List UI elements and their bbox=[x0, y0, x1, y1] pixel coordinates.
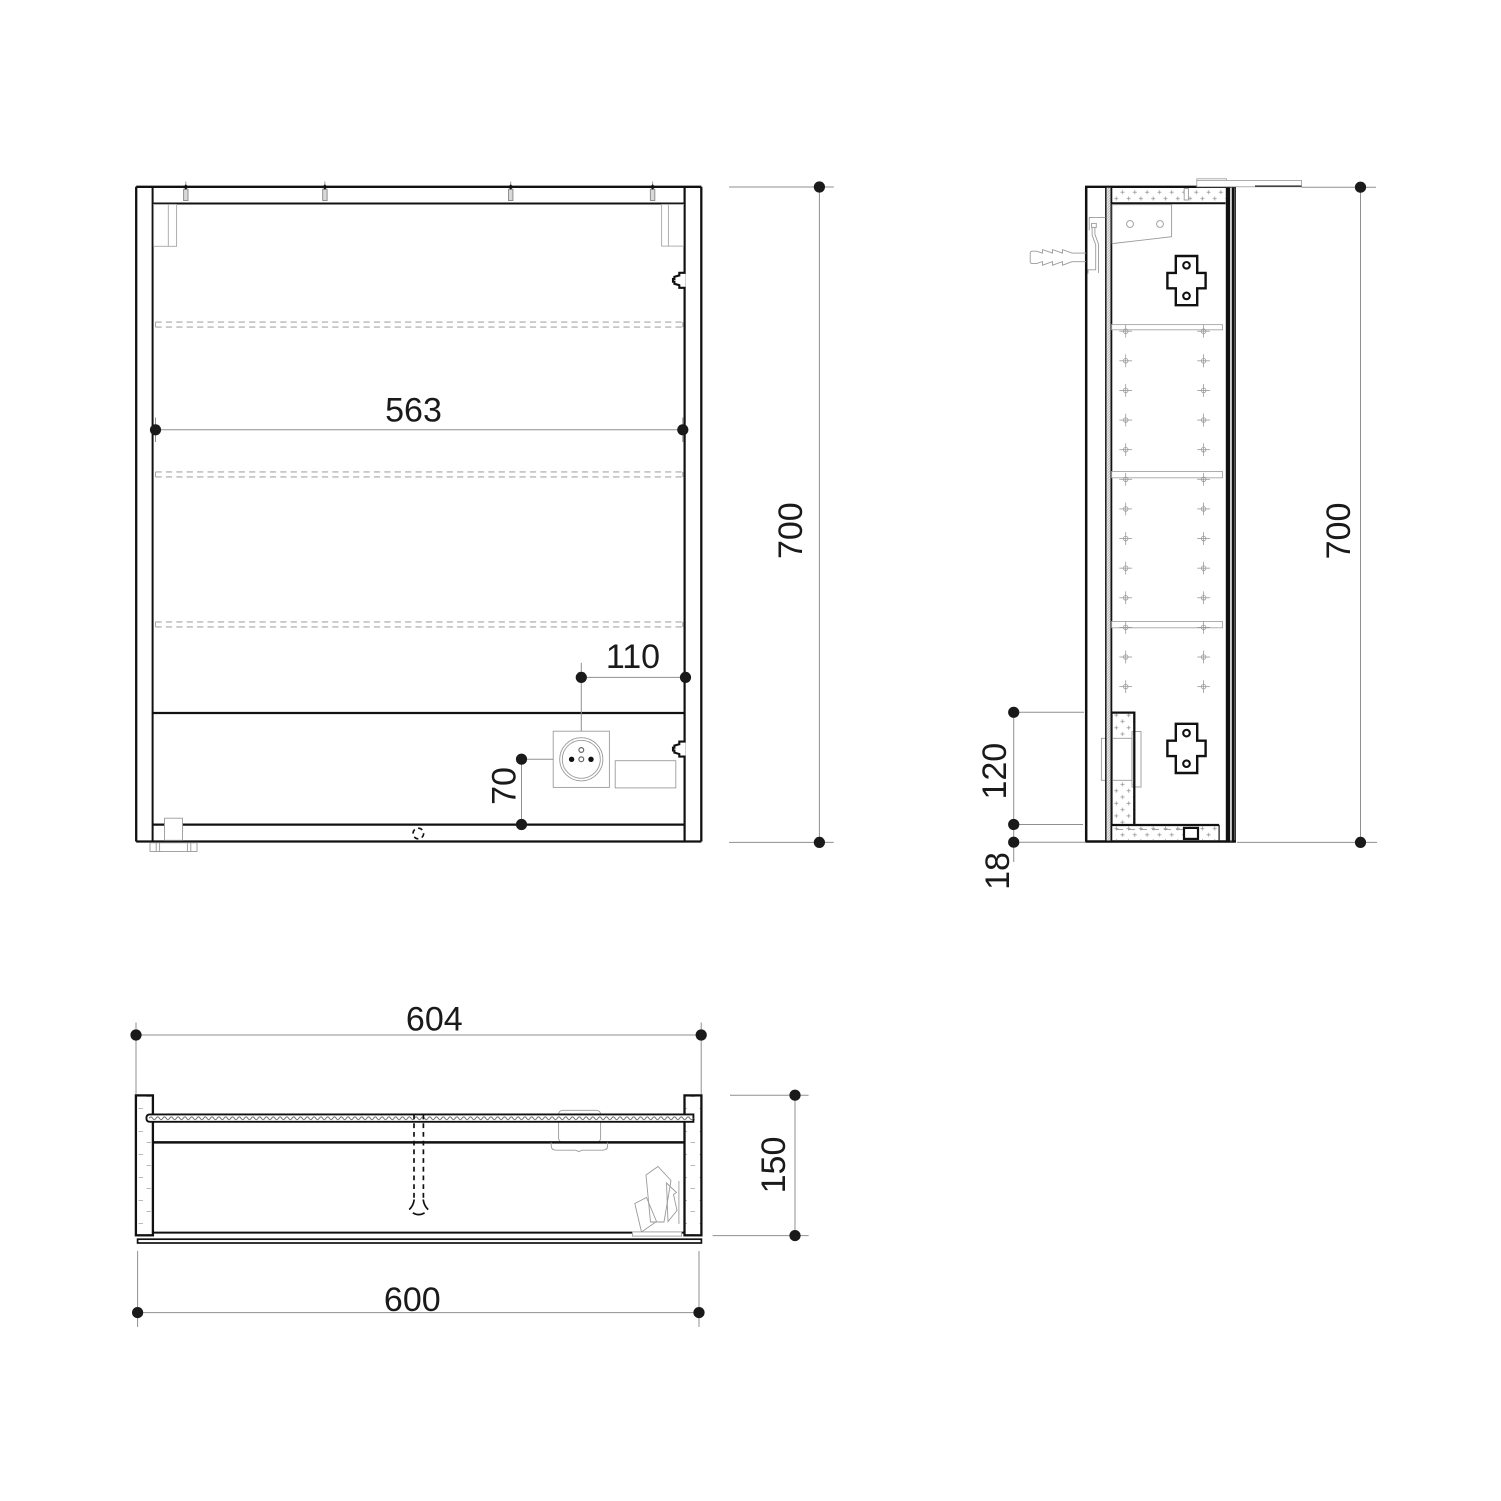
svg-text:604: 604 bbox=[406, 1001, 463, 1039]
svg-text:120: 120 bbox=[976, 743, 1014, 800]
svg-text:700: 700 bbox=[772, 502, 810, 559]
svg-text:150: 150 bbox=[755, 1137, 793, 1194]
svg-text:563: 563 bbox=[385, 392, 442, 430]
svg-text:18: 18 bbox=[979, 852, 1017, 890]
svg-text:70: 70 bbox=[486, 767, 524, 805]
svg-text:700: 700 bbox=[1320, 503, 1358, 560]
svg-text:110: 110 bbox=[606, 638, 660, 676]
svg-text:600: 600 bbox=[384, 1281, 441, 1319]
